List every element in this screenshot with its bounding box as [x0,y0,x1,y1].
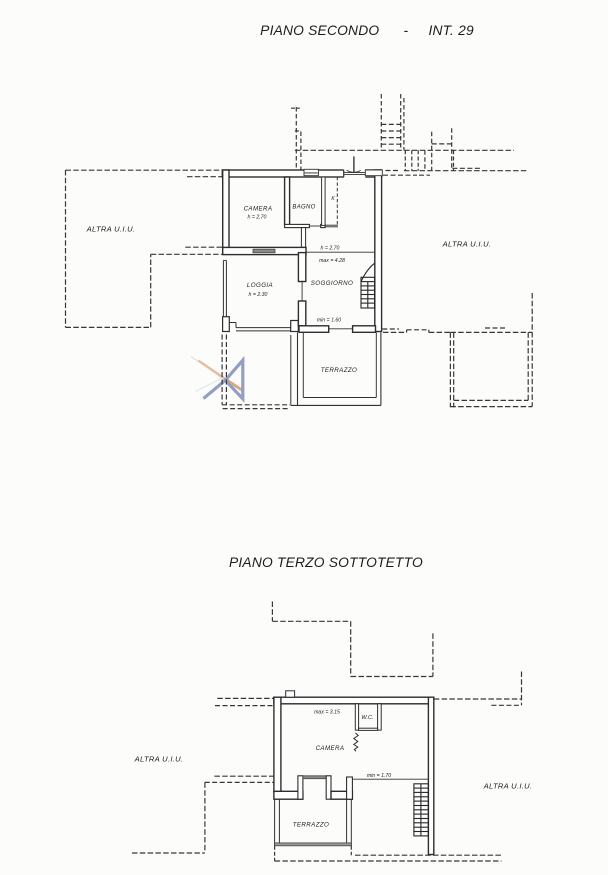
svg-text:max = 4.28: max = 4.28 [319,258,345,264]
svg-text:W.C.: W.C. [361,715,373,721]
svg-text:ALTRA U.I.U.: ALTRA U.I.U. [86,225,136,234]
svg-text:CAMERA: CAMERA [244,206,273,213]
svg-text:LOGGIA: LOGGIA [247,282,273,289]
svg-text:PIANO SECONDO - INT.: PIANO SECONDO - INT. 29 [260,23,474,38]
svg-text:BAGNO: BAGNO [292,205,315,211]
svg-text:ALTRA U.I.U.: ALTRA U.I.U. [134,755,184,764]
svg-text:PIANO TERZO SOTTOTETTO: PIANO TERZO SOTTOTETTO [229,555,423,570]
svg-text:h = 2.30: h = 2.30 [249,292,268,298]
svg-text:h = 2.70: h = 2.70 [321,246,340,252]
svg-text:h = 2.70: h = 2.70 [248,215,267,221]
svg-text:CAMERA: CAMERA [316,745,345,752]
svg-text:min = 1.60: min = 1.60 [317,318,341,324]
svg-text:ALTRA U.I.U.: ALTRA U.I.U. [442,240,492,249]
svg-text:ALTRA U.I.U.: ALTRA U.I.U. [483,782,533,791]
svg-text:max = 3.15: max = 3.15 [314,710,340,716]
svg-text:TERRAZZO: TERRAZZO [293,822,330,829]
svg-text:TERRAZZO: TERRAZZO [321,367,358,374]
svg-text:K: K [331,196,335,202]
svg-text:SOGGIORNO: SOGGIORNO [311,280,353,287]
svg-text:min = 1.70: min = 1.70 [367,773,391,779]
